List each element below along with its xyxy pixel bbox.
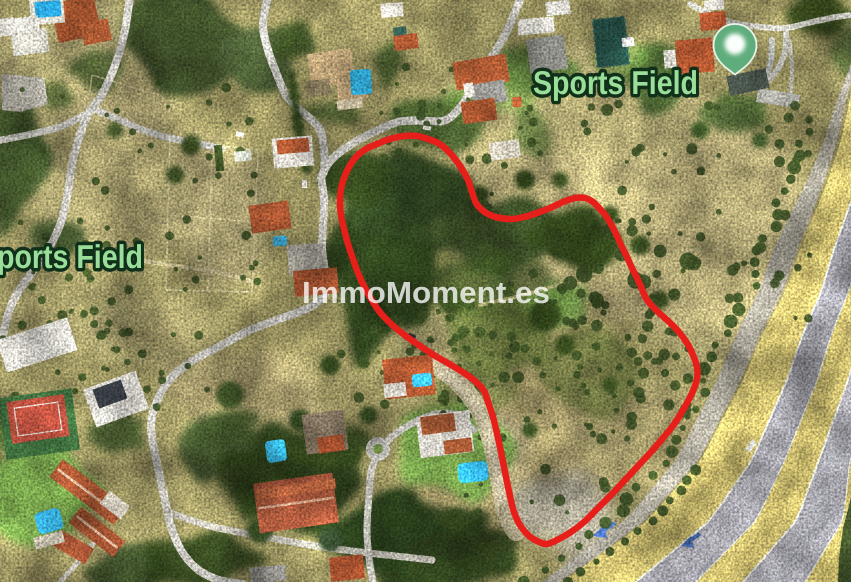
svg-text:ImmoMoment.es: ImmoMoment.es <box>302 275 550 310</box>
svg-text:Sports Field: Sports Field <box>533 64 698 101</box>
svg-text:Sports Field: Sports Field <box>0 238 143 275</box>
